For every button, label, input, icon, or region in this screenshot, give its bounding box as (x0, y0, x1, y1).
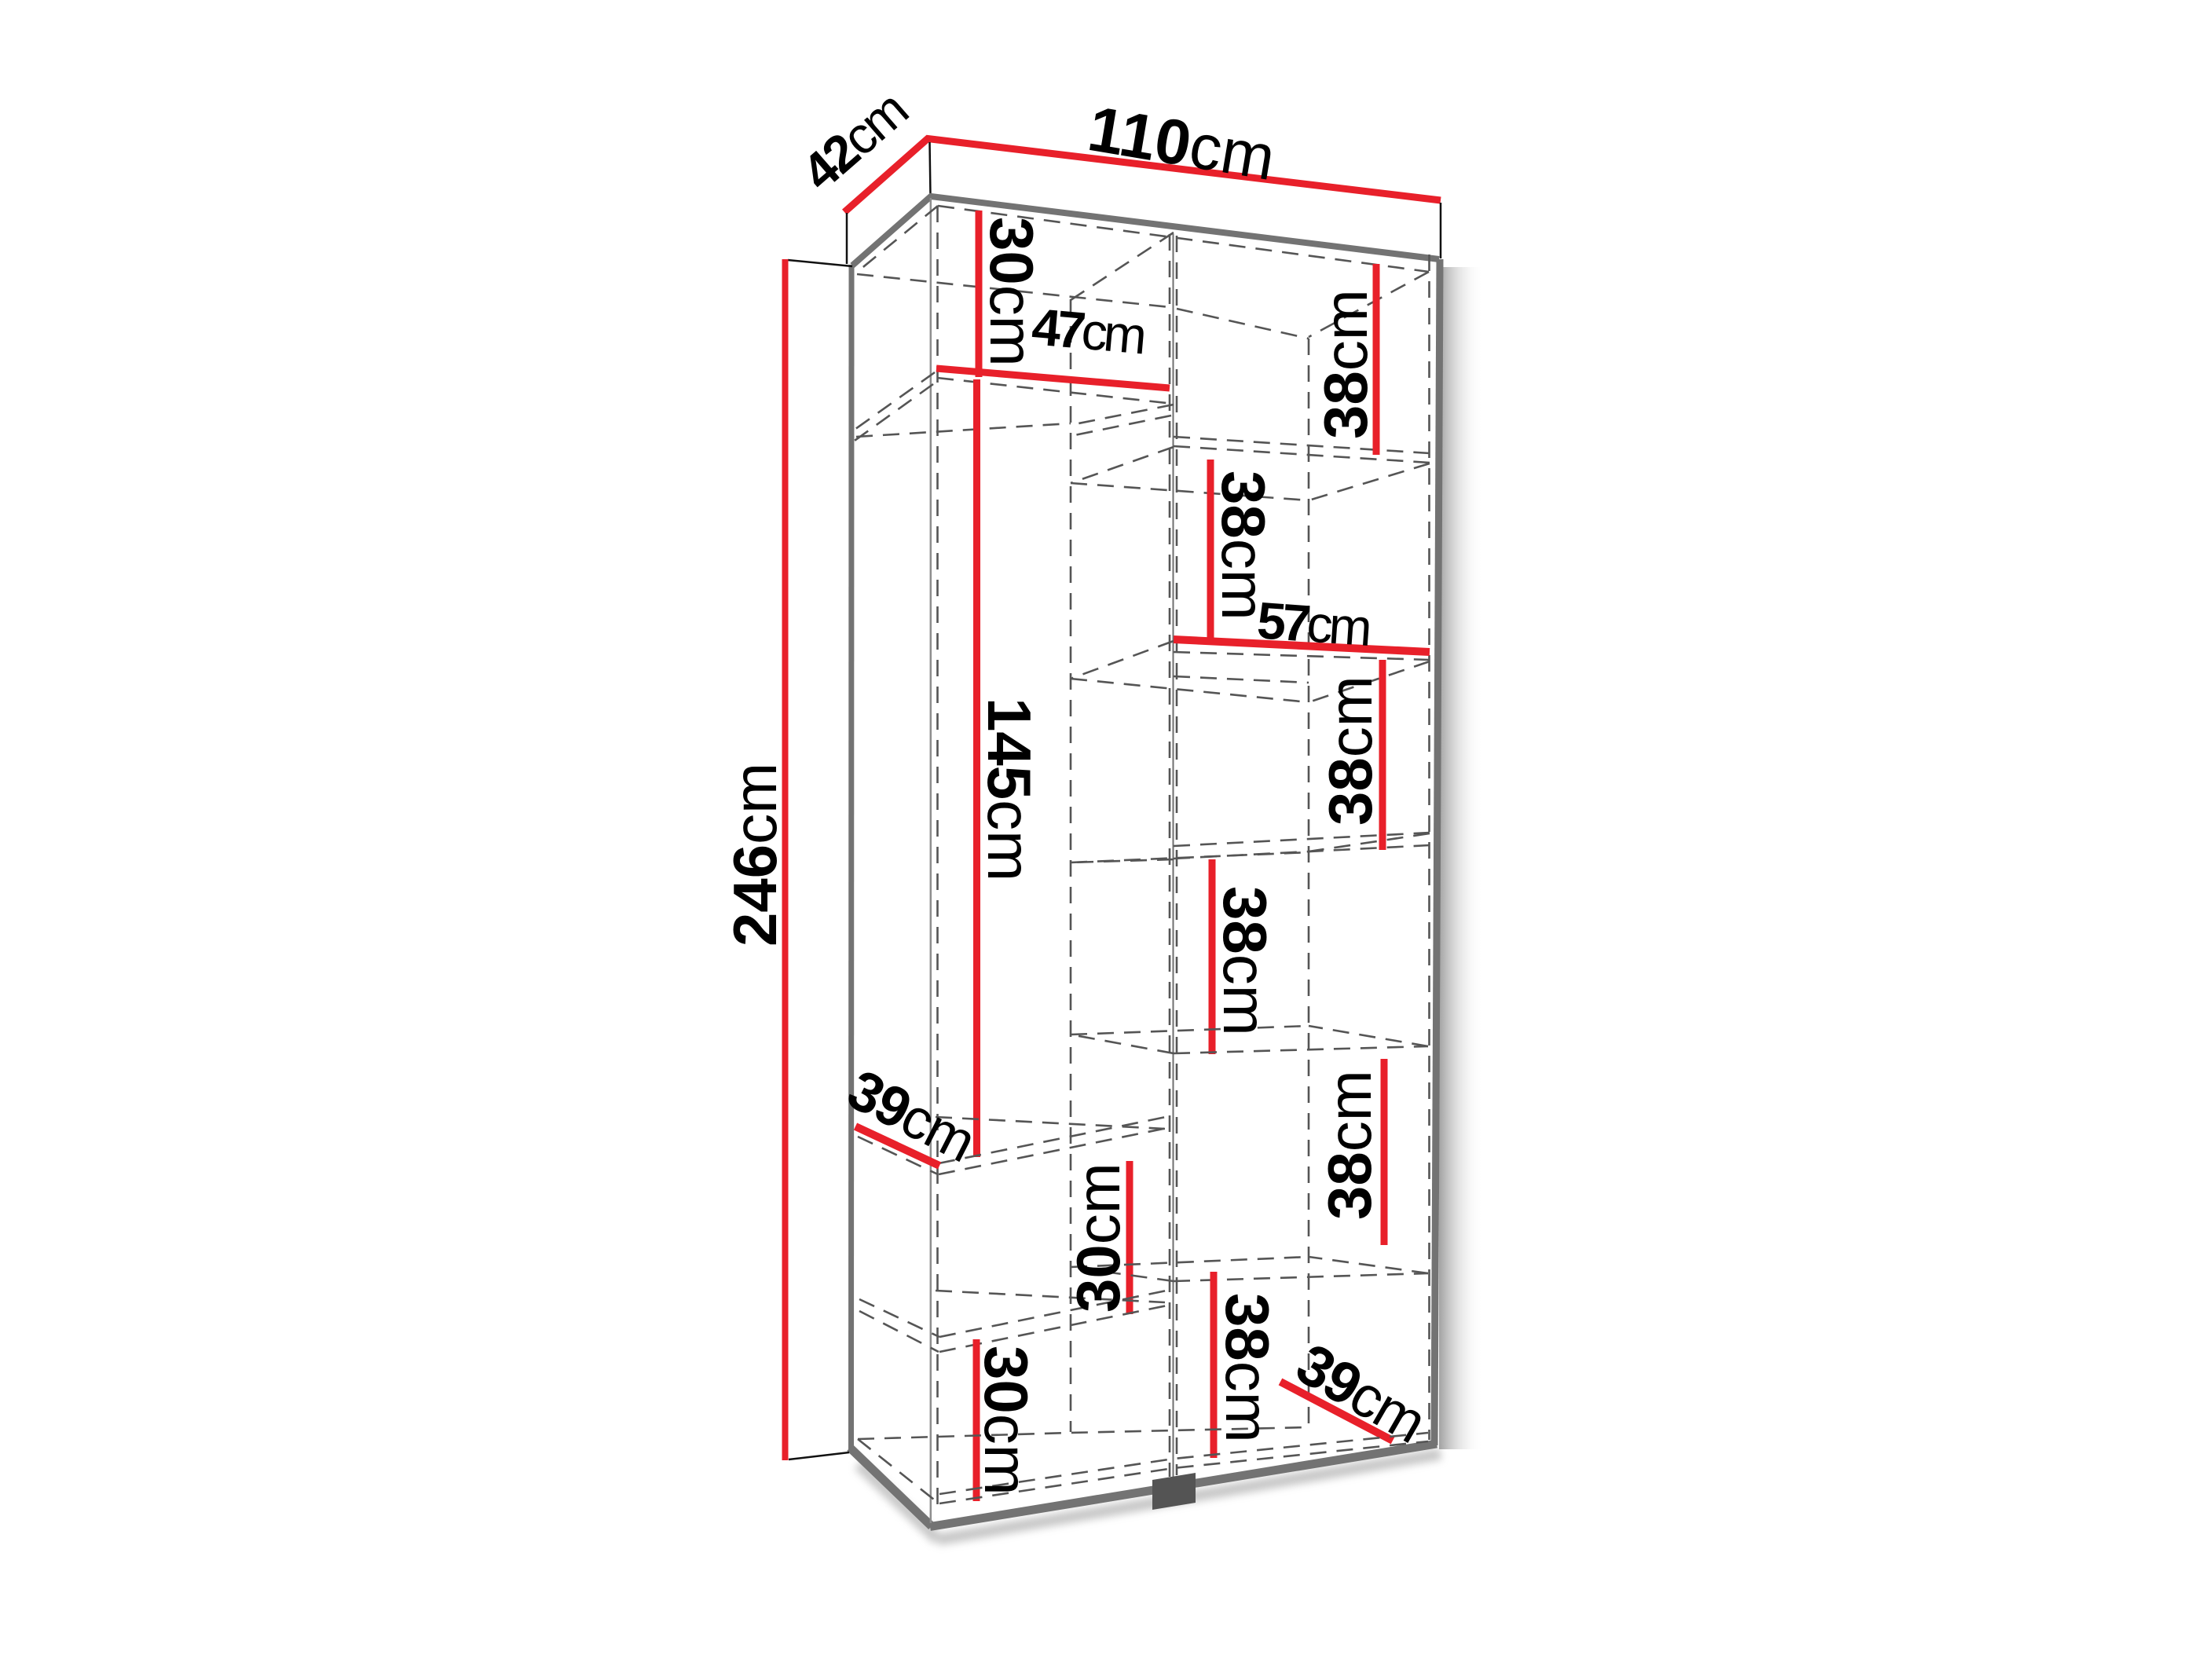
svg-text:30cm: 30cm (1064, 1163, 1133, 1313)
svg-text:38cm: 38cm (1213, 1293, 1282, 1443)
svg-text:246cm: 246cm (720, 763, 789, 947)
svg-text:38cm: 38cm (1209, 471, 1278, 621)
svg-text:47cm: 47cm (1030, 297, 1146, 364)
svg-text:145cm: 145cm (975, 698, 1044, 881)
svg-text:38cm: 38cm (1315, 1070, 1384, 1220)
svg-text:30cm: 30cm (977, 217, 1046, 367)
svg-text:38cm: 38cm (1316, 676, 1385, 826)
svg-text:38cm: 38cm (1210, 886, 1280, 1036)
svg-text:30cm: 30cm (972, 1346, 1041, 1496)
svg-text:38cm: 38cm (1311, 289, 1380, 439)
